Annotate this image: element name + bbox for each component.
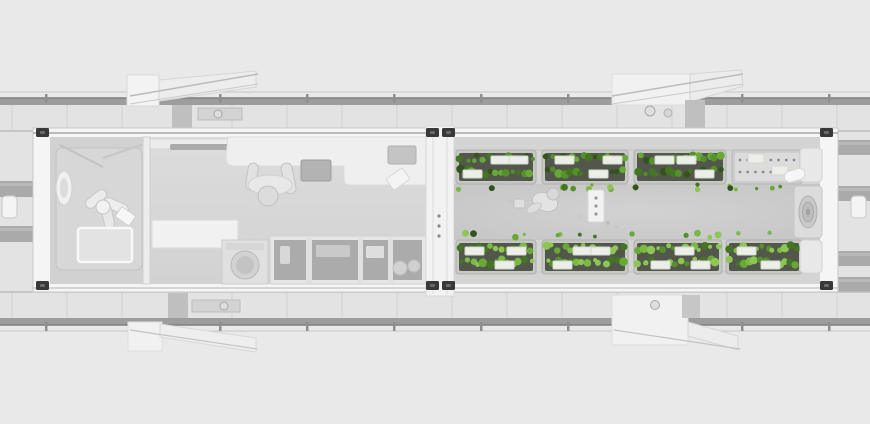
grow-tray — [509, 156, 528, 164]
loose-item — [606, 221, 610, 225]
cart-dot — [594, 212, 597, 215]
stored-box — [366, 246, 384, 258]
grow-tray — [603, 156, 622, 164]
plant — [711, 258, 720, 267]
plant — [585, 153, 593, 161]
grow-tray — [507, 247, 526, 255]
fitting-pin — [446, 131, 451, 134]
stair-column — [682, 295, 700, 318]
stair-machinery — [192, 300, 240, 312]
plant — [634, 168, 642, 176]
end-panel — [800, 240, 822, 273]
grow-tray — [495, 261, 514, 269]
plant — [567, 247, 573, 253]
plant — [530, 259, 535, 264]
plant — [480, 157, 486, 163]
plant — [643, 260, 648, 265]
grow-tray — [651, 261, 670, 269]
railing-post — [219, 94, 222, 103]
plant — [619, 257, 628, 266]
plant — [472, 159, 476, 163]
loose-plant — [590, 183, 593, 186]
plant — [647, 246, 656, 255]
farm-aisle — [454, 184, 820, 240]
plant — [643, 172, 647, 176]
plant — [652, 171, 658, 177]
stair-landing — [612, 295, 688, 345]
junction-band — [426, 126, 454, 296]
plant — [759, 244, 764, 249]
railing-post — [45, 322, 48, 331]
plant — [457, 244, 464, 251]
plant — [527, 248, 534, 255]
plant — [621, 243, 628, 250]
plant — [595, 260, 601, 266]
plant — [549, 243, 554, 248]
loose-plant — [629, 231, 634, 236]
equipment-dot — [746, 171, 749, 174]
railing-post — [828, 94, 831, 103]
grow-tray — [761, 261, 780, 269]
corner-fitting — [442, 281, 455, 290]
cart-dot — [594, 204, 597, 207]
railing-post — [306, 322, 309, 331]
loose-plant — [523, 233, 526, 236]
plant — [574, 157, 580, 163]
railing-post — [45, 94, 48, 103]
equipment-dot — [793, 159, 796, 162]
stair-wheel — [645, 106, 655, 116]
loose-plant — [755, 187, 758, 190]
cooktop — [388, 146, 416, 164]
loose-plant — [556, 233, 560, 237]
plant — [554, 247, 560, 253]
fitting-pin — [40, 284, 45, 287]
storage-shelf — [270, 236, 426, 284]
door-handle-dot — [437, 224, 440, 227]
corner-fitting — [426, 281, 439, 290]
loose-plant — [727, 185, 733, 191]
module-junction — [426, 126, 454, 296]
plant — [787, 241, 795, 249]
loose-plant — [695, 183, 699, 187]
counter-sink — [301, 160, 331, 181]
corner-fitting — [820, 281, 833, 290]
plant — [474, 153, 479, 158]
plant — [502, 169, 510, 177]
loose-plant — [512, 234, 519, 241]
grow-tray — [655, 156, 674, 164]
grow-tray — [691, 261, 710, 269]
railing-post — [828, 322, 831, 331]
grow-tray — [553, 261, 572, 269]
plant — [614, 169, 619, 174]
plant — [700, 156, 706, 162]
equipment-dot — [785, 159, 788, 162]
stair-wheel — [214, 110, 222, 118]
corner-fitting — [36, 128, 49, 137]
plant — [550, 167, 555, 172]
exhaust-fan — [794, 186, 822, 238]
railing-post — [567, 322, 570, 331]
railing-post — [219, 322, 222, 331]
person-head — [258, 186, 278, 206]
strip-highlight — [837, 188, 870, 191]
grow-tray — [555, 156, 574, 164]
stored-bottle — [280, 246, 290, 264]
railing-post — [741, 94, 744, 103]
equipment-dot — [754, 171, 757, 174]
strip-highlight — [837, 253, 870, 256]
grow-tray — [737, 247, 756, 255]
fitting-pin — [824, 131, 829, 134]
stair-wheel — [651, 301, 660, 310]
plant — [684, 261, 689, 266]
plant — [499, 246, 505, 252]
railing-post — [393, 94, 396, 103]
plant — [531, 157, 535, 161]
shelf-divider — [388, 238, 393, 283]
plant — [584, 259, 592, 267]
strip-highlight — [837, 142, 870, 145]
shelf-divider — [358, 238, 363, 283]
plant — [697, 248, 701, 252]
plant — [456, 155, 463, 162]
plant — [640, 245, 648, 253]
fitting-pin — [430, 131, 435, 134]
coupling-knob — [851, 196, 866, 218]
fan-hub — [96, 200, 110, 214]
loose-plant — [570, 186, 576, 192]
strip-highlight — [837, 279, 870, 282]
fan-hub — [806, 209, 810, 216]
plant — [543, 154, 549, 160]
bathroom-partition-wall — [143, 137, 150, 284]
loose-plant — [734, 187, 738, 191]
farmer-head — [547, 188, 559, 200]
fitting-pin — [446, 284, 451, 287]
plant — [718, 167, 723, 172]
plant — [675, 170, 682, 177]
stored-canister — [408, 260, 420, 272]
plant — [716, 244, 722, 250]
grow-tray — [695, 170, 714, 178]
plant — [725, 245, 733, 253]
door-handle-dot — [437, 214, 440, 217]
loose-plant — [593, 235, 597, 239]
corner-fitting — [36, 281, 49, 290]
machine-drum — [236, 256, 254, 274]
railing-post — [480, 322, 483, 331]
grow-tray — [589, 170, 608, 178]
plant — [613, 245, 619, 251]
plant — [593, 155, 597, 159]
railing-post — [306, 94, 309, 103]
grow-tray — [491, 156, 510, 164]
plant — [511, 170, 515, 174]
cart-dot — [594, 196, 597, 199]
loose-plant — [470, 230, 477, 237]
plant — [726, 256, 733, 263]
loose-plant — [456, 187, 461, 192]
loose-item — [578, 215, 582, 219]
plant — [486, 260, 494, 268]
plant — [525, 170, 533, 178]
plant — [610, 169, 615, 174]
loose-plant — [778, 185, 782, 189]
plant — [487, 243, 493, 249]
loose-plant — [633, 184, 639, 190]
plant — [521, 256, 528, 263]
seedling-tray — [748, 154, 764, 163]
plant-rack — [542, 150, 628, 184]
loose-plant — [715, 231, 722, 238]
plant — [717, 152, 725, 160]
shelf-divider — [306, 238, 312, 283]
loose-plant — [694, 230, 701, 237]
plant-rack — [634, 150, 726, 184]
plant-rack — [456, 240, 536, 274]
stair-column — [685, 100, 705, 130]
machine-panel — [226, 243, 264, 250]
equipment-dot — [769, 159, 772, 162]
loose-plant — [561, 184, 568, 191]
corner-fitting — [426, 128, 439, 137]
plant — [466, 159, 470, 163]
stored-box — [316, 245, 350, 257]
plant — [750, 256, 758, 264]
railing-post — [567, 94, 570, 103]
fitting-pin — [40, 131, 45, 134]
plant — [701, 242, 709, 250]
equipment-dot — [739, 159, 742, 162]
plant — [638, 153, 644, 159]
corner-fitting — [442, 128, 455, 137]
sink-basin — [60, 178, 68, 198]
plant-rack — [456, 150, 536, 184]
grow-tray — [573, 247, 592, 255]
fitting-pin — [824, 284, 829, 287]
railing-post — [480, 94, 483, 103]
plant-rack — [634, 240, 722, 274]
plant — [659, 246, 666, 253]
plant — [465, 257, 470, 262]
plant — [492, 170, 498, 176]
loose-plant — [607, 184, 613, 190]
plant — [791, 261, 798, 268]
plant — [459, 259, 463, 263]
loose-plant — [489, 185, 495, 191]
plant — [493, 246, 498, 251]
plant — [516, 170, 521, 175]
stair-landing — [128, 322, 162, 351]
stair-wheel — [220, 302, 228, 310]
fitting-pin — [430, 284, 435, 287]
loose-plant — [462, 230, 469, 237]
strip-highlight — [0, 228, 33, 231]
stored-canister — [393, 261, 407, 275]
grow-tray — [463, 170, 482, 178]
grow-tray — [677, 156, 696, 164]
stair-wheel — [664, 109, 672, 117]
loose-plant — [736, 231, 740, 235]
railing-post — [741, 322, 744, 331]
plant — [634, 260, 641, 267]
shelf-ledge — [170, 144, 228, 150]
plant — [666, 243, 671, 248]
plant — [678, 258, 685, 265]
strip-highlight — [0, 183, 33, 186]
right-farm-module — [454, 137, 822, 284]
washing-machine — [222, 240, 268, 284]
loose-plant — [695, 187, 700, 192]
plant — [514, 258, 521, 265]
coupling-knob — [2, 196, 17, 218]
stair-column — [172, 105, 192, 131]
plant — [577, 170, 583, 176]
plant — [688, 169, 692, 173]
plant — [478, 258, 487, 267]
loose-plant — [707, 235, 712, 240]
loose-item — [615, 226, 618, 229]
grow-tray — [675, 247, 694, 255]
grow-tray — [591, 247, 610, 255]
door-handle-dot — [437, 234, 440, 237]
left-living-module — [50, 137, 428, 284]
grow-tray — [465, 247, 484, 255]
plant — [769, 248, 774, 253]
equipment-dot — [762, 171, 765, 174]
loose-plant — [767, 231, 771, 235]
container-farm-render — [0, 0, 870, 424]
plant — [578, 259, 584, 265]
stair-landing — [127, 75, 159, 106]
loose-plant — [770, 186, 775, 191]
stair-column — [168, 293, 188, 318]
plant — [672, 261, 678, 267]
shower-tray — [78, 228, 132, 262]
plant — [619, 166, 626, 173]
plant-rack — [542, 240, 628, 274]
equipment-dot — [777, 159, 780, 162]
watering-can — [514, 199, 525, 208]
plant — [608, 257, 614, 263]
render-stage — [0, 0, 870, 424]
loose-plant — [578, 233, 582, 237]
railing-post — [393, 322, 396, 331]
plant — [545, 167, 550, 172]
plant-rack — [725, 240, 802, 274]
loose-plant — [684, 233, 689, 238]
plant — [708, 245, 712, 249]
equipment-dot — [739, 171, 742, 174]
bathroom — [50, 137, 150, 284]
corner-fitting — [820, 128, 833, 137]
